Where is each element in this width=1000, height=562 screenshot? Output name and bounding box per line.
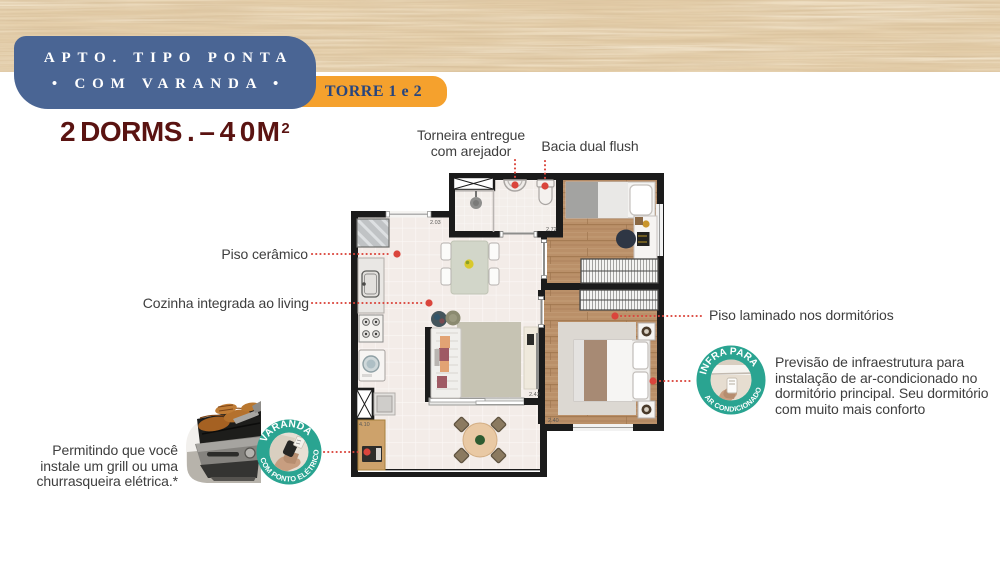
svg-text:2.43: 2.43 bbox=[529, 392, 540, 398]
svg-text:2.72: 2.72 bbox=[546, 227, 557, 233]
svg-text:2.03: 2.03 bbox=[430, 220, 441, 226]
svg-text:2.40: 2.40 bbox=[548, 418, 559, 424]
svg-text:4.10: 4.10 bbox=[359, 422, 370, 428]
